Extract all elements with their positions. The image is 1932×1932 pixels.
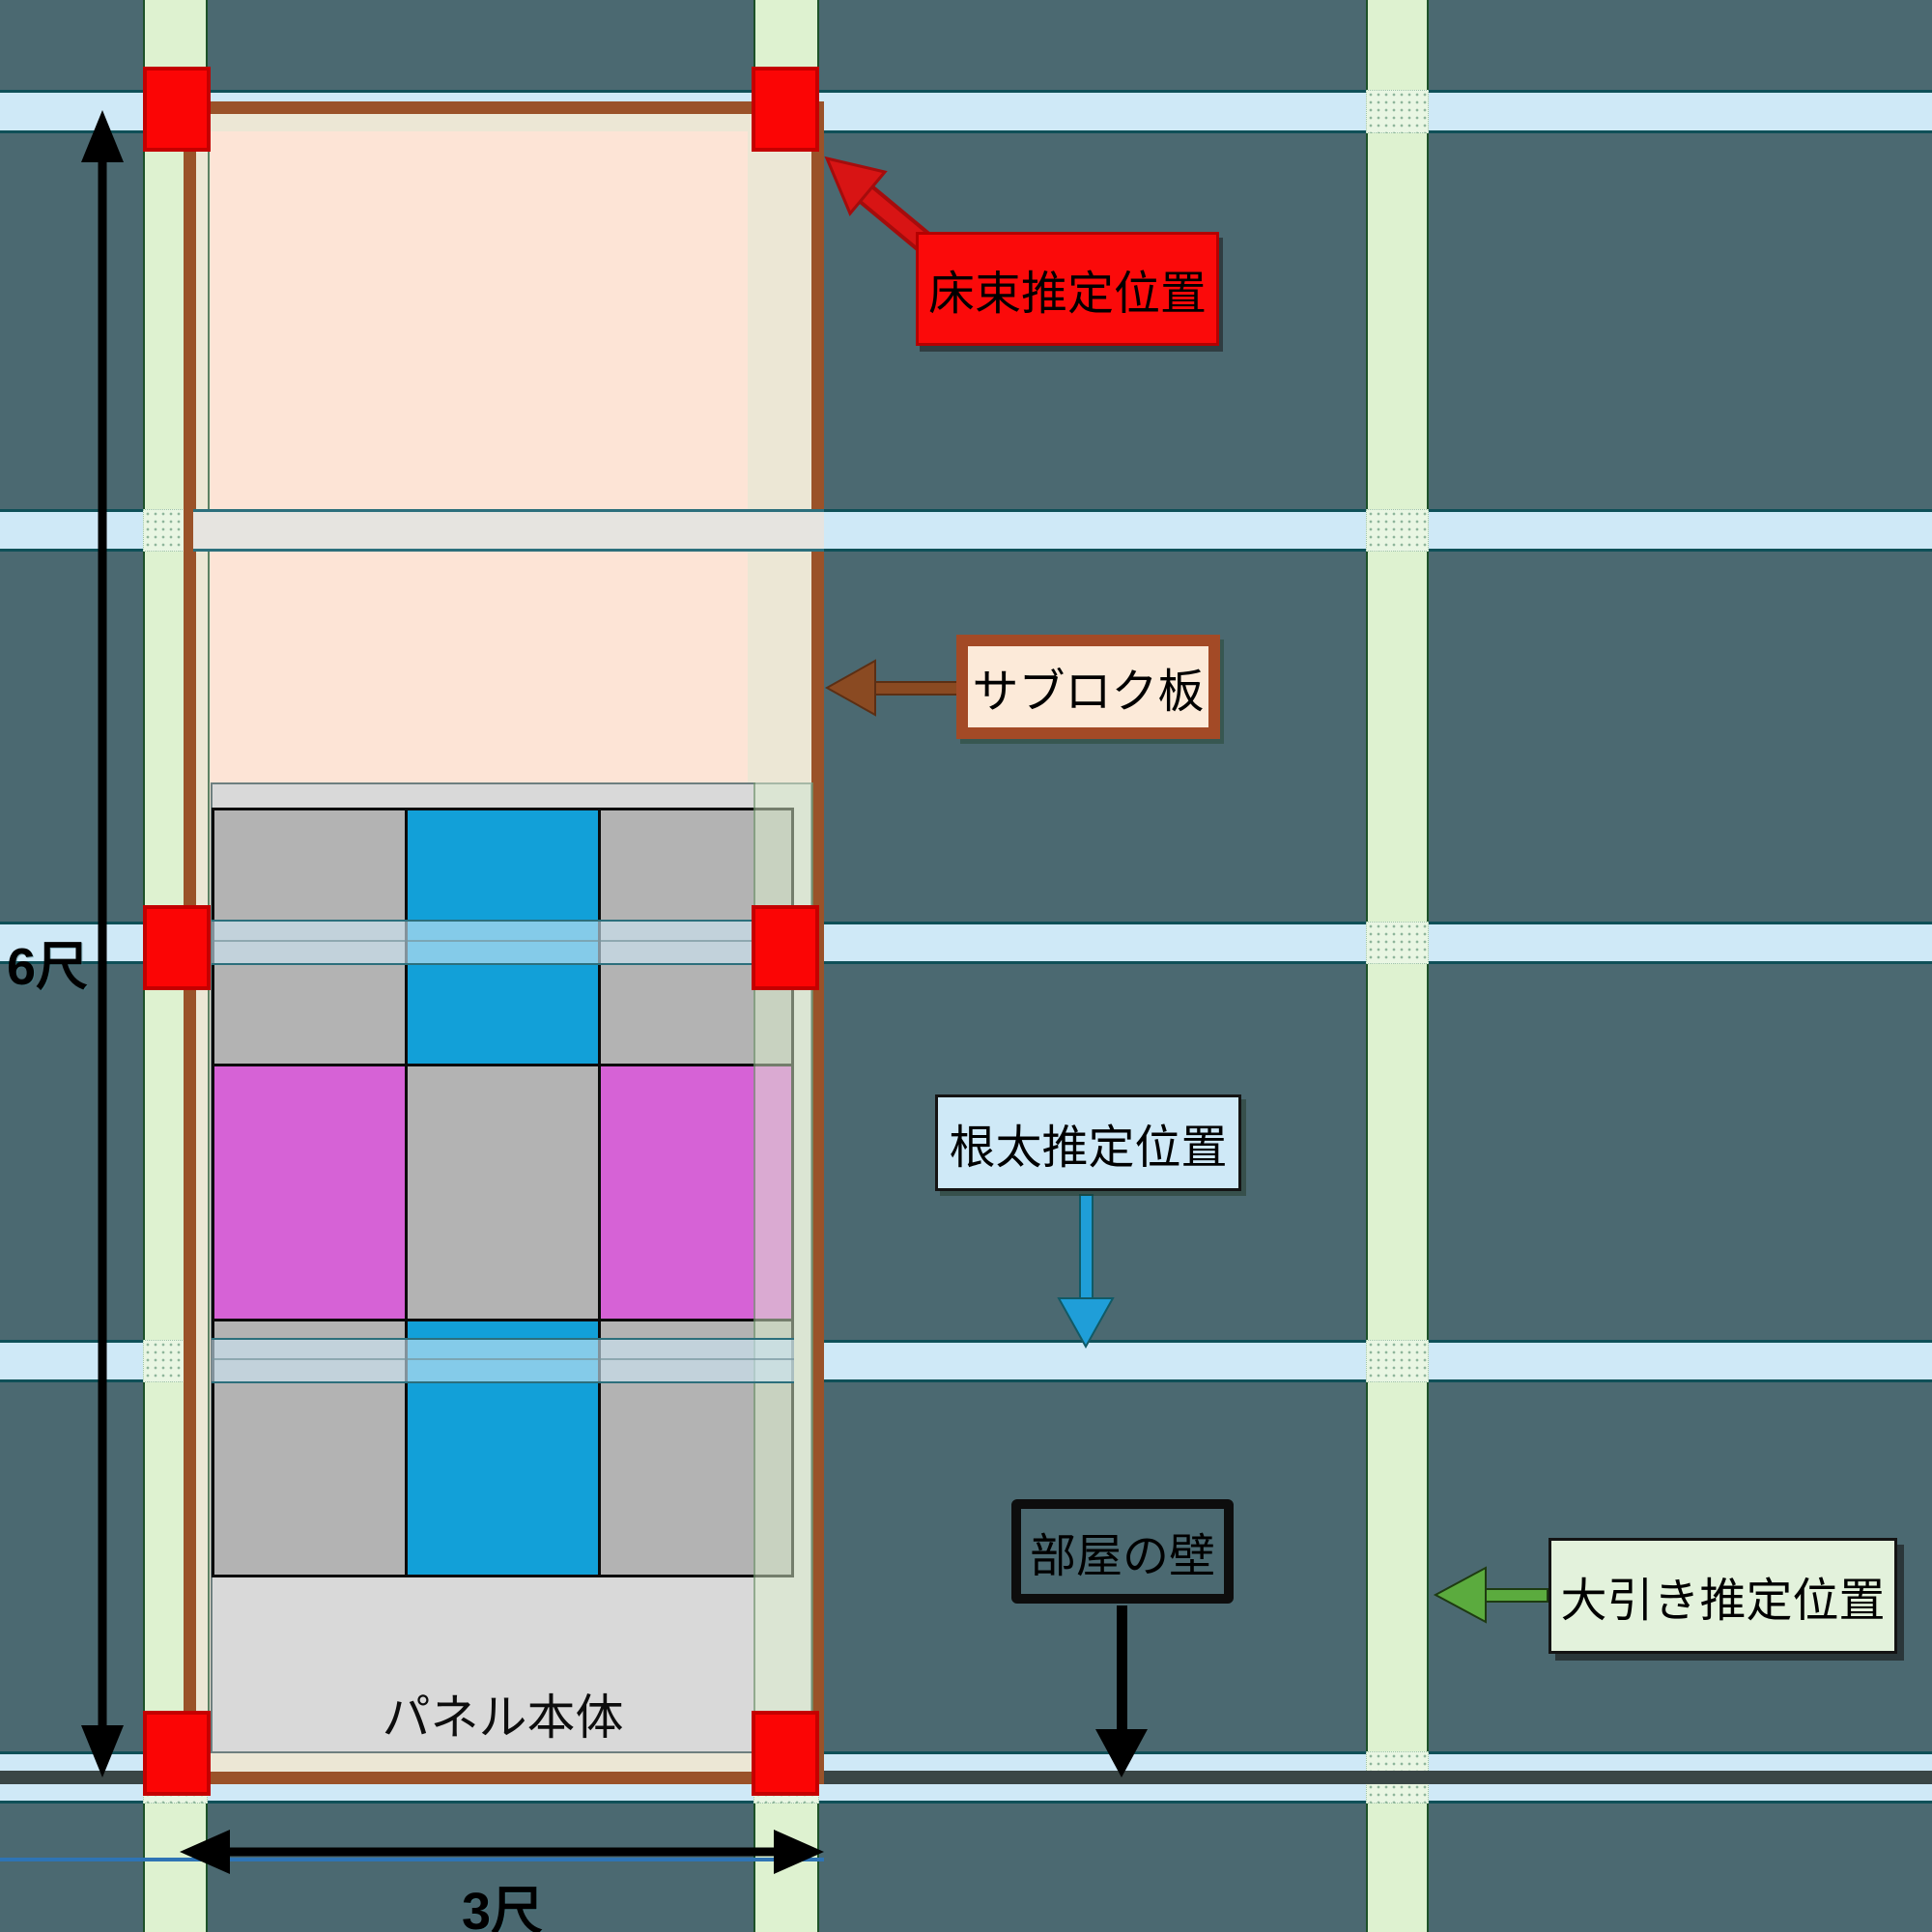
blue-callout-arrow bbox=[1059, 1195, 1113, 1347]
callout-saburoku-board: サブロク板 bbox=[956, 635, 1220, 739]
dimension-3shaku: 3尺 bbox=[462, 1868, 543, 1932]
floor-structure-diagram: パネル本体 bbox=[0, 0, 1932, 1932]
callout-floor-post: 床束推定位置 bbox=[916, 232, 1219, 346]
red-callout-arrow bbox=[827, 158, 925, 243]
wall-baseline-blue bbox=[0, 1858, 824, 1861]
dimension-6shaku: 6尺 bbox=[7, 923, 88, 1000]
callout-beam: 大引き推定位置 bbox=[1548, 1538, 1897, 1654]
callout-room-wall: 部屋の壁 bbox=[1011, 1499, 1234, 1604]
green-callout-arrow bbox=[1435, 1568, 1548, 1622]
black-callout-arrow bbox=[1095, 1605, 1148, 1777]
brown-callout-arrow bbox=[827, 661, 958, 715]
callout-joist: 根太推定位置 bbox=[935, 1094, 1241, 1191]
